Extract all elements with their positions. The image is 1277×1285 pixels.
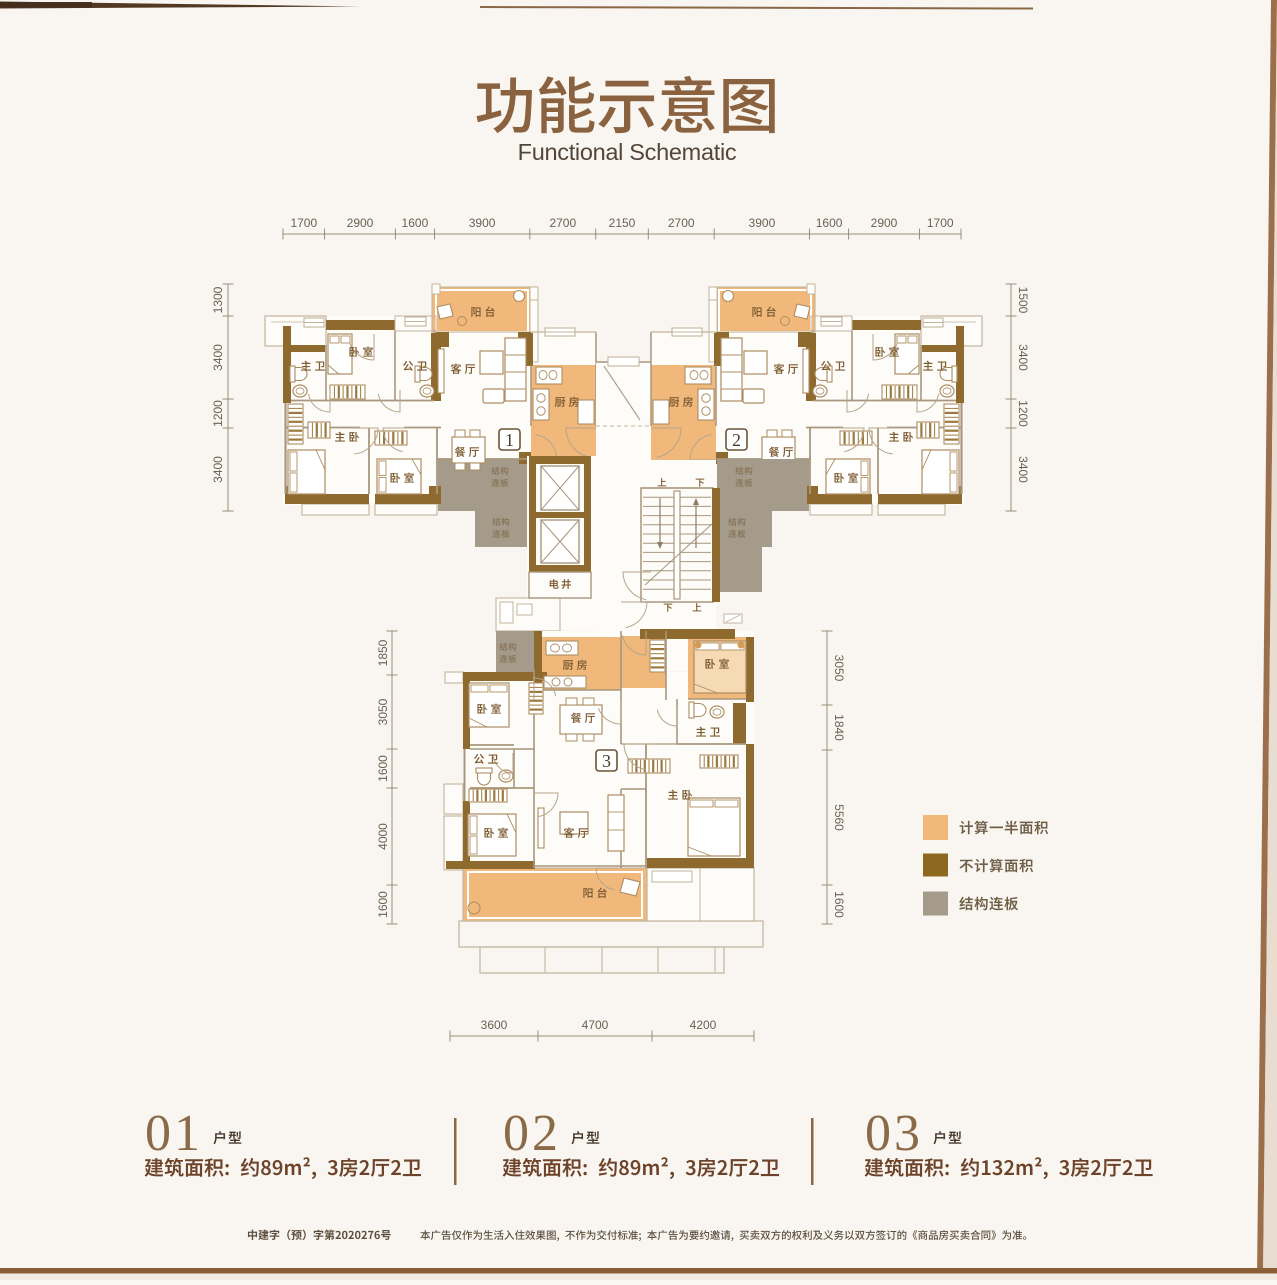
- svg-text:1840: 1840: [832, 714, 846, 741]
- svg-text:3400: 3400: [1016, 456, 1030, 483]
- svg-text:1700: 1700: [290, 216, 317, 230]
- svg-text:2: 2: [732, 430, 741, 450]
- svg-text:2700: 2700: [668, 216, 695, 230]
- svg-text:3600: 3600: [481, 1018, 508, 1032]
- svg-text:03: 03: [865, 1105, 923, 1162]
- svg-text:3900: 3900: [749, 216, 776, 230]
- svg-text:02: 02: [503, 1105, 561, 1162]
- svg-text:Functional Schematic: Functional Schematic: [518, 139, 737, 165]
- svg-text:3900: 3900: [469, 216, 496, 230]
- svg-text:1850: 1850: [376, 639, 390, 666]
- svg-text:4200: 4200: [690, 1018, 717, 1032]
- svg-text:3400: 3400: [211, 344, 225, 371]
- svg-text:3400: 3400: [1016, 344, 1030, 371]
- svg-text:3400: 3400: [211, 456, 225, 483]
- svg-text:1600: 1600: [376, 891, 390, 918]
- svg-text:1200: 1200: [1016, 400, 1030, 427]
- svg-text:2900: 2900: [347, 216, 374, 230]
- svg-text:1700: 1700: [927, 216, 954, 230]
- svg-text:3050: 3050: [376, 698, 390, 725]
- svg-text:1500: 1500: [1016, 287, 1030, 314]
- svg-text:2150: 2150: [609, 216, 636, 230]
- svg-text:1600: 1600: [402, 216, 429, 230]
- svg-text:1300: 1300: [211, 286, 225, 313]
- svg-text:5560: 5560: [832, 804, 846, 831]
- svg-text:4700: 4700: [582, 1018, 609, 1032]
- svg-text:4000: 4000: [376, 823, 390, 850]
- svg-text:1600: 1600: [376, 755, 390, 782]
- svg-text:2900: 2900: [871, 216, 898, 230]
- svg-text:2700: 2700: [549, 216, 576, 230]
- svg-text:1600: 1600: [832, 891, 846, 918]
- svg-text:3: 3: [602, 751, 611, 771]
- svg-text:1600: 1600: [816, 216, 843, 230]
- svg-text:1: 1: [505, 430, 514, 450]
- svg-text:1200: 1200: [211, 400, 225, 427]
- svg-text:01: 01: [145, 1105, 203, 1162]
- svg-text:3050: 3050: [832, 655, 846, 682]
